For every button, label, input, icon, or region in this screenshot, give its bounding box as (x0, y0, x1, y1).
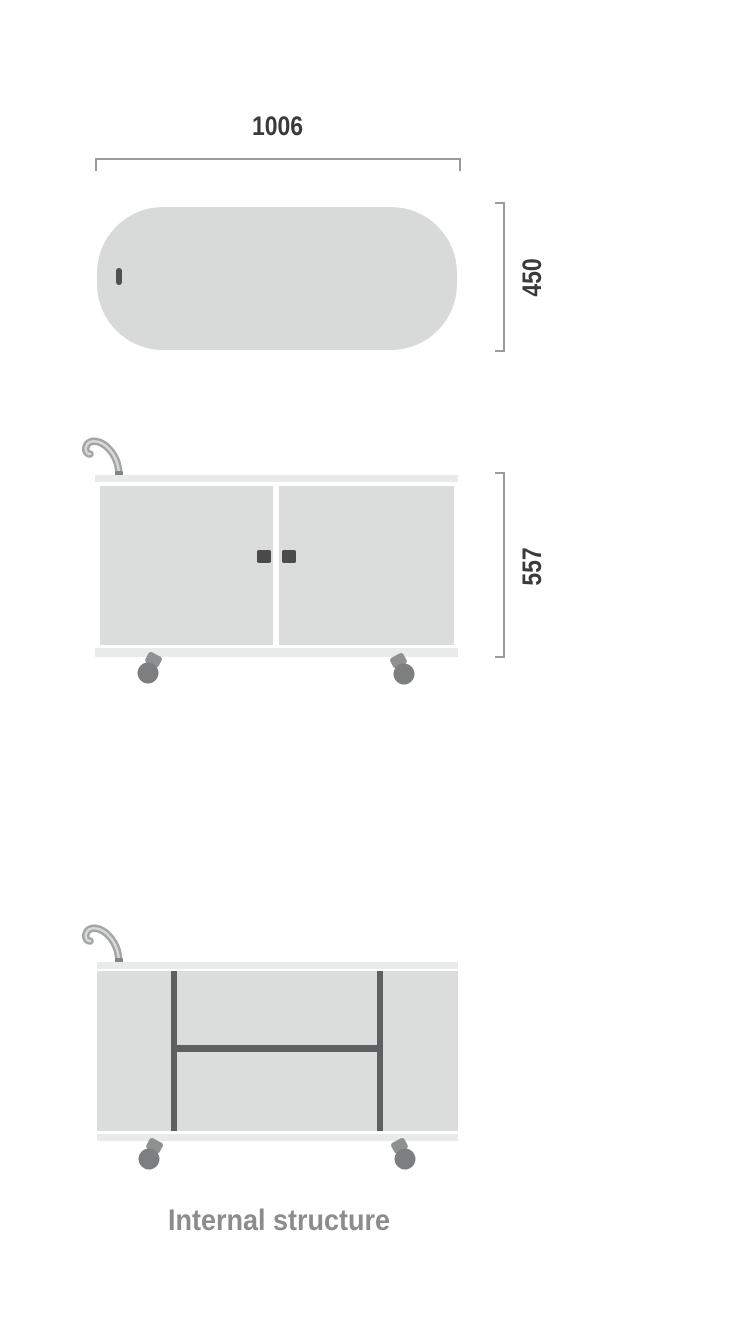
internal-top-strip (97, 962, 458, 969)
depth-dimension-label: 450 (520, 258, 547, 296)
height-dimension-label-wrap: 557 (506, 539, 560, 593)
internal-shelf-line (171, 1045, 383, 1052)
width-dimension-label: 1006 (123, 109, 432, 143)
height-dimension-bracket (494, 472, 506, 658)
caster-wheel-icon (132, 654, 170, 690)
front-view-group: 557 (0, 400, 744, 720)
front-top-strip (95, 475, 458, 482)
left-door-handle-icon (257, 550, 271, 563)
front-right-door (279, 486, 454, 645)
depth-dimension-label-wrap: 450 (506, 250, 560, 304)
caster-wheel-icon (382, 655, 420, 691)
top-view-panel (97, 207, 457, 350)
top-view-detail-mark (116, 268, 122, 285)
internal-structure-caption: Internal structure (134, 1203, 424, 1239)
height-dimension-label: 557 (520, 547, 547, 585)
depth-dimension-bracket (494, 202, 506, 352)
top-view-group: 1006 450 (0, 0, 744, 400)
right-door-handle-icon (282, 550, 296, 563)
width-dimension-bracket (95, 158, 461, 172)
internal-structure-group: Internal structure (0, 900, 744, 1340)
front-left-door (100, 486, 273, 645)
caster-wheel-icon (383, 1140, 421, 1176)
caster-wheel-icon (133, 1140, 171, 1176)
